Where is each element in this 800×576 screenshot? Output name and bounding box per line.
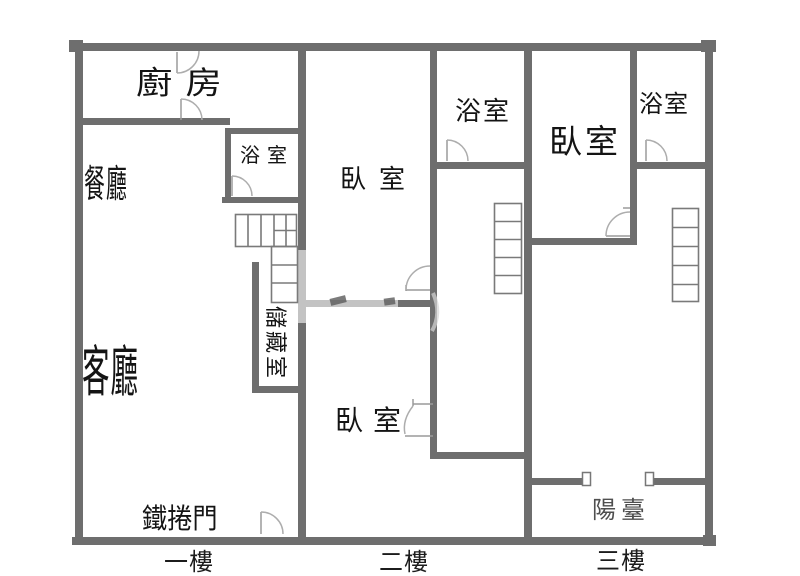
bedroom2-upper-label: 臥室 bbox=[340, 167, 418, 193]
stairs-floor3-icon bbox=[673, 209, 699, 302]
roller-door-label: 鐵捲門 bbox=[142, 506, 218, 534]
floor-plan: 廚房 餐廳 浴室 客廳 儲藏室 鐵捲門 浴室 臥室 臥室 臥室 浴室 陽臺 一樓… bbox=[0, 0, 800, 576]
door-arc-bathroom1-icon bbox=[232, 176, 252, 196]
bedroom2-lower-label: 臥室 bbox=[335, 408, 411, 436]
floor1-caption: 一樓 bbox=[164, 551, 214, 575]
stairs-floor2-icon bbox=[495, 204, 522, 294]
balcony-post-icons bbox=[583, 473, 654, 486]
bathroom1-label: 浴室 bbox=[240, 146, 294, 166]
stairs-floor1-icon bbox=[236, 215, 298, 303]
door-arc-bathroom3-icon bbox=[646, 140, 667, 161]
dining-room-label: 餐廳 bbox=[84, 166, 128, 204]
kitchen-label: 廚房 bbox=[136, 69, 235, 100]
bathroom3-label: 浴室 bbox=[639, 93, 689, 117]
door-arc-bedroom3-icon bbox=[606, 208, 630, 236]
living-room-label: 客廳 bbox=[82, 345, 139, 400]
door-arc-roller-door-icon bbox=[261, 512, 283, 534]
door-arc-bathroom2-icon bbox=[447, 140, 468, 161]
floor3-caption: 三樓 bbox=[596, 550, 646, 574]
storage-room-label: 儲藏室 bbox=[264, 306, 286, 381]
balcony-label: 陽臺 bbox=[592, 499, 650, 523]
door-arc-bedroom2-upper-icon bbox=[406, 266, 430, 291]
plan-graphics bbox=[0, 0, 800, 576]
bedroom3-label: 臥室 bbox=[549, 127, 621, 160]
door-arc-kitchen-inner-icon bbox=[181, 99, 202, 120]
bathroom2-label: 浴室 bbox=[455, 99, 511, 125]
watermark-smudges bbox=[330, 293, 438, 331]
floor2-caption: 二樓 bbox=[379, 551, 429, 575]
